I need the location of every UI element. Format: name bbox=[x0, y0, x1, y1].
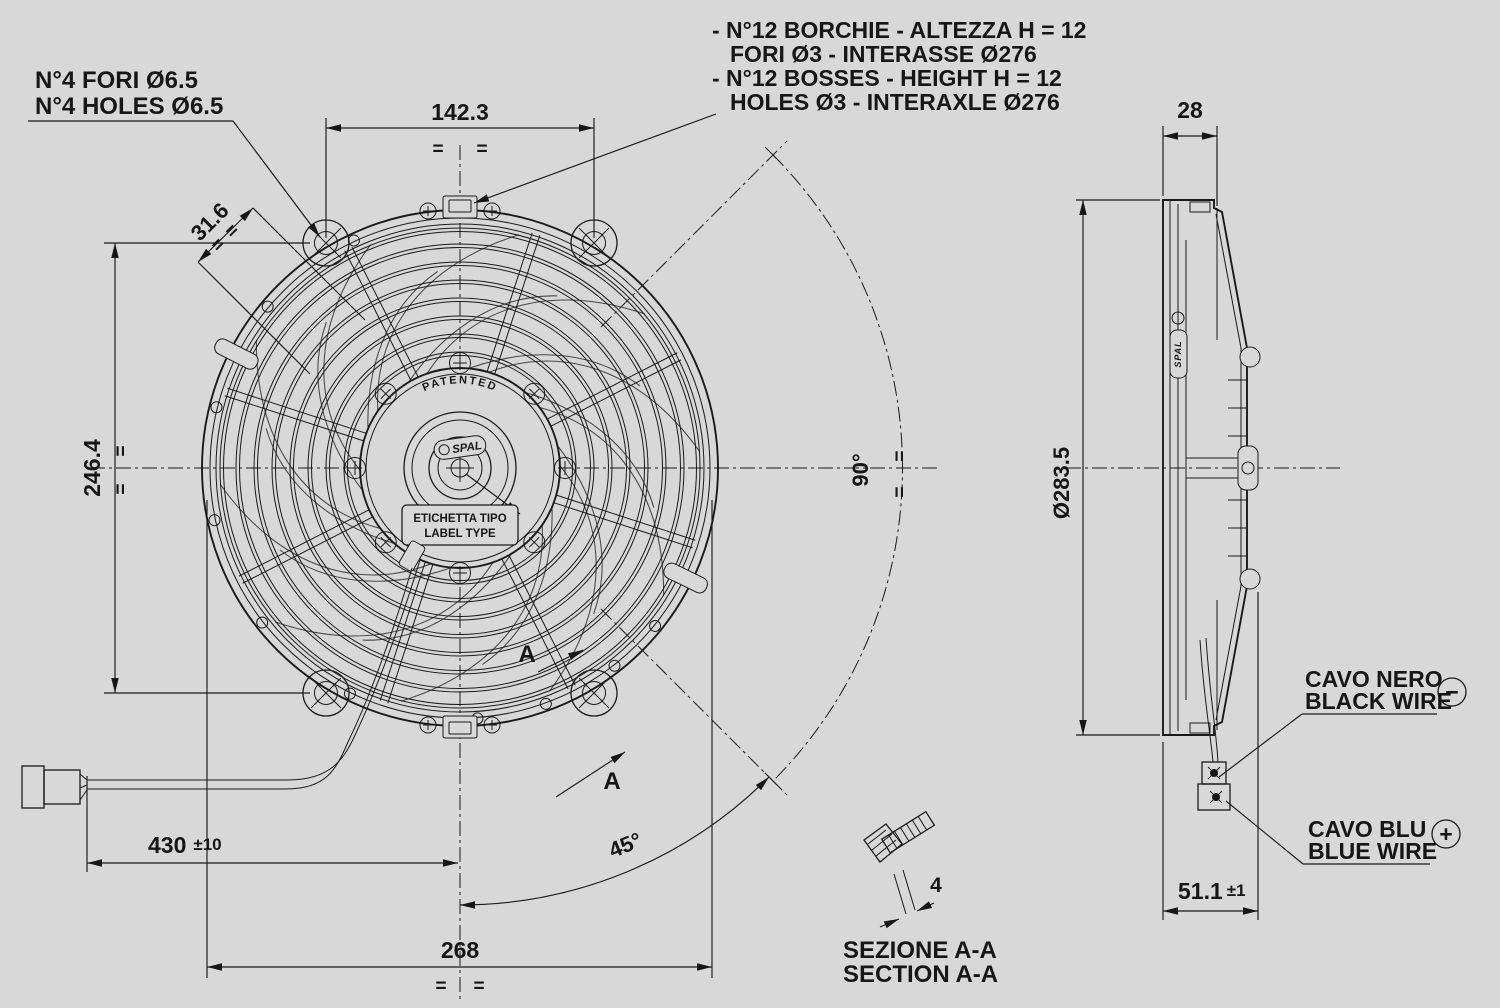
dim-top-value: 142.3 bbox=[431, 99, 489, 125]
rim-certification-label bbox=[212, 336, 260, 371]
section-letter-1: A bbox=[518, 641, 535, 668]
side-dimensions: 28 Ø283.5 51.1±1 bbox=[1049, 97, 1258, 920]
dim-4: 4 bbox=[880, 874, 942, 927]
bosses-note-line4: HOLES Ø3 - INTERAXLE Ø276 bbox=[730, 89, 1060, 115]
rim-type-label bbox=[661, 561, 709, 596]
label-type-box: ETICHETTA TIPO LABEL TYPE bbox=[402, 505, 518, 545]
svg-text:=: = bbox=[473, 976, 484, 997]
label-box-line1: ETICHETTA TIPO bbox=[413, 513, 506, 525]
svg-text:=: = bbox=[432, 139, 443, 160]
minus-symbol: − bbox=[1445, 679, 1458, 705]
dim-total-value: 51.1±1 bbox=[1178, 878, 1246, 904]
plus-symbol: + bbox=[1439, 821, 1452, 847]
wire-labels: CAVO NERO BLACK WIRE − CAVO BLU BLUE WIR… bbox=[1219, 666, 1466, 864]
svg-text:=: = bbox=[890, 486, 911, 497]
dim-28: 28 bbox=[1163, 97, 1217, 206]
top-clip bbox=[420, 196, 500, 219]
motor-hub: PATENTED SPAL ETICHETTA TIPO LABEL TYPE bbox=[345, 353, 576, 584]
note-bosses: - N°12 BORCHIE - ALTEZZA H = 12 FORI Ø3 … bbox=[474, 17, 1086, 203]
label-box-line2: LABEL TYPE bbox=[424, 528, 496, 540]
holes-note-line1: N°4 FORI Ø6.5 bbox=[35, 67, 198, 94]
holes-note-line2: N°4 HOLES Ø6.5 bbox=[35, 93, 223, 120]
side-wire bbox=[1198, 638, 1230, 810]
mounting-tab-bottom-right bbox=[561, 660, 626, 725]
cable-connector bbox=[22, 766, 87, 808]
svg-text:=: = bbox=[435, 976, 446, 997]
dim-cable-value: 430±10 bbox=[148, 832, 222, 858]
section-title-line2: SECTION A-A bbox=[843, 961, 998, 988]
side-view: SPAL bbox=[1066, 200, 1340, 810]
dim-height-value: 246.4 bbox=[79, 439, 105, 497]
section-title-line1: SEZIONE A-A bbox=[843, 937, 997, 964]
black-wire-label: CAVO NERO BLACK WIRE − bbox=[1219, 666, 1466, 777]
bottom-clip bbox=[420, 716, 500, 738]
svg-text:=: = bbox=[111, 445, 132, 456]
angle-half-value: 45° bbox=[605, 827, 645, 863]
radial-45-top bbox=[601, 141, 787, 327]
angle-full-value: 90° bbox=[848, 453, 873, 486]
svg-text:SPAL: SPAL bbox=[1173, 340, 1183, 367]
dim-51-1: 51.1±1 bbox=[1163, 592, 1258, 920]
svg-text:=: = bbox=[111, 483, 132, 494]
bosses-note-line3: - N°12 BOSSES - HEIGHT H = 12 bbox=[712, 65, 1062, 91]
dim-diameter-value: Ø283.5 bbox=[1049, 447, 1074, 519]
front-view: PATENTED SPAL ETICHETTA TIPO LABEL TYPE bbox=[22, 141, 940, 1000]
svg-text:BLUE WIRE: BLUE WIRE bbox=[1308, 838, 1437, 864]
section-rod bbox=[882, 812, 935, 853]
svg-text:=: = bbox=[476, 139, 487, 160]
section-detail: 4 SEZIONE A-A SECTION A-A bbox=[843, 812, 998, 988]
svg-text:=: = bbox=[890, 450, 911, 461]
blue-wire-label: CAVO BLU BLUE WIRE + bbox=[1226, 801, 1460, 864]
svg-text:=: = bbox=[207, 234, 230, 257]
bosses-note-line1: - N°12 BORCHIE - ALTEZZA H = 12 bbox=[712, 17, 1086, 43]
dim-430: 430±10 bbox=[87, 776, 458, 872]
fan-technical-drawing: PATENTED SPAL ETICHETTA TIPO LABEL TYPE bbox=[0, 0, 1500, 1008]
dim-45-deg: 45° bbox=[460, 777, 769, 905]
dim-thickness-value: 4 bbox=[930, 874, 942, 897]
power-cable bbox=[87, 540, 426, 789]
blue-wire-terminal bbox=[1210, 791, 1222, 803]
section-bracket bbox=[864, 824, 915, 914]
dim-width-value: 268 bbox=[441, 937, 480, 963]
radial-45-bottom bbox=[601, 609, 787, 795]
black-wire-terminal bbox=[1208, 767, 1220, 779]
bosses-note-line2: FORI Ø3 - INTERASSE Ø276 bbox=[730, 41, 1037, 67]
technical-drawing-page: PATENTED SPAL ETICHETTA TIPO LABEL TYPE bbox=[0, 0, 1500, 1008]
note-holes: N°4 FORI Ø6.5 N°4 HOLES Ø6.5 bbox=[28, 67, 320, 237]
dim-90-deg: 90° = = bbox=[848, 450, 911, 497]
section-letter-2: A bbox=[603, 768, 620, 795]
svg-text:BLACK WIRE: BLACK WIRE bbox=[1305, 688, 1452, 714]
dim-depth-value: 28 bbox=[1177, 97, 1203, 123]
svg-text:=: = bbox=[221, 220, 244, 243]
